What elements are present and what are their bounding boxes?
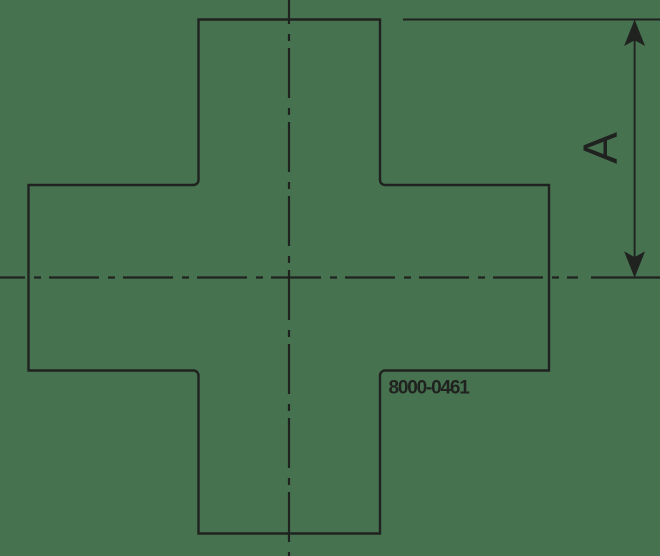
svg-text:8000-0461: 8000-0461 — [389, 378, 471, 399]
svg-text:A: A — [575, 132, 628, 164]
